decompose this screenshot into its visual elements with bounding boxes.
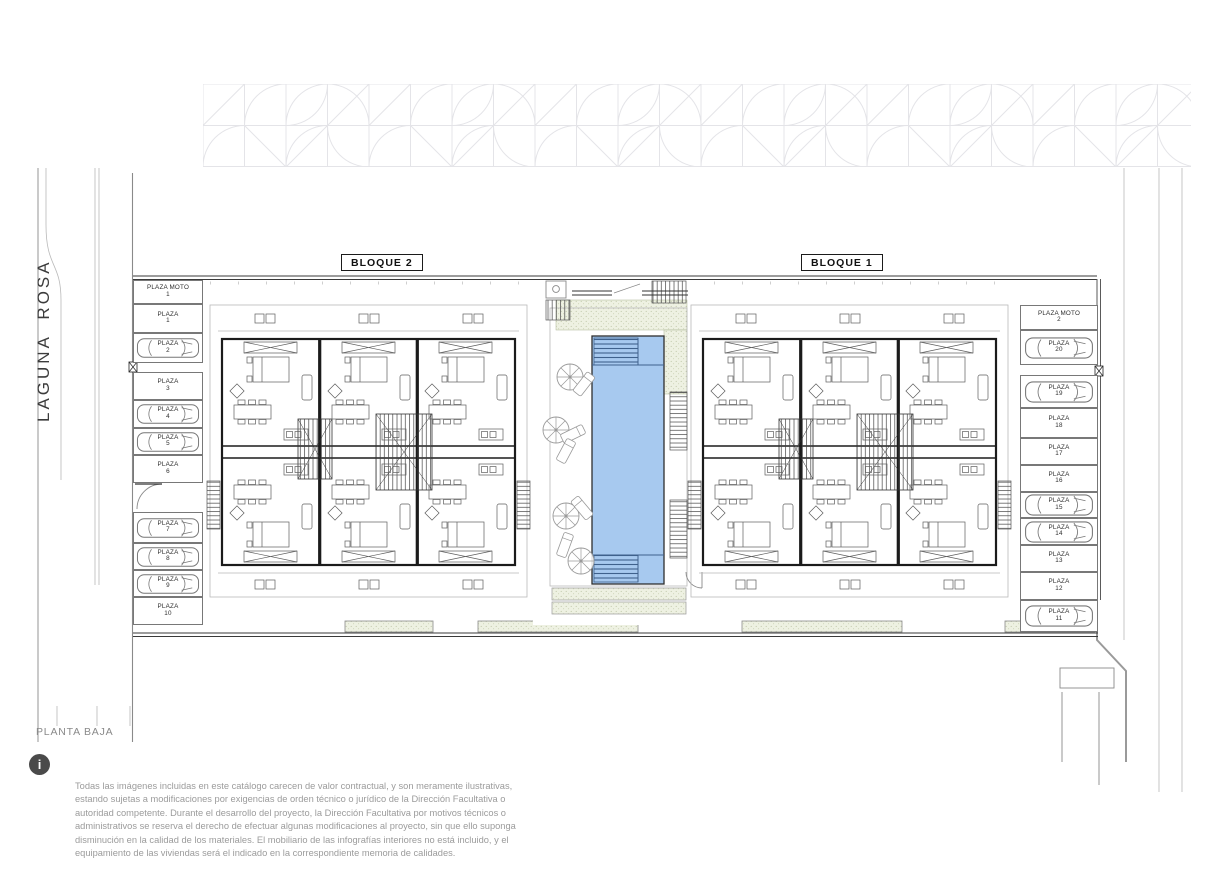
parking-stall-13: PLAZA13 [1020, 545, 1098, 572]
parking-stall-moto-2: PLAZA MOTO2 [1020, 305, 1098, 330]
parking-stall-9: PLAZA9 [133, 570, 203, 597]
pool-courtyard [533, 281, 702, 625]
parking-stall-20: PLAZA20 [1020, 330, 1098, 365]
info-icon: i [29, 754, 50, 775]
parking-stall-12: PLAZA12 [1020, 572, 1098, 600]
block1-label: BLOQUE 1 [801, 254, 883, 271]
parking-stall-11: PLAZA11 [1020, 600, 1098, 632]
block2-label: BLOQUE 2 [341, 254, 423, 271]
parking-stall-5: PLAZA5 [133, 428, 203, 455]
parking-stall-6: PLAZA6 [133, 455, 203, 483]
parking-stall-14: PLAZA14 [1020, 518, 1098, 545]
parking-stall-16: PLAZA16 [1020, 465, 1098, 492]
parking-stall-19: PLAZA19 [1020, 375, 1098, 408]
planters [345, 621, 1095, 632]
parking-stall-10: PLAZA10 [133, 597, 203, 625]
parking-stall-1: PLAZA1 [133, 304, 203, 333]
parking-stall-3: PLAZA3 [133, 372, 203, 400]
parking-stall-15: PLAZA15 [1020, 492, 1098, 518]
parking-stall-4: PLAZA4 [133, 400, 203, 428]
parking-stall-18: PLAZA18 [1020, 408, 1098, 438]
parking-stall-17: PLAZA17 [1020, 438, 1098, 465]
street-name-label: LAGUNA ROSA [34, 276, 54, 422]
bloque-2-plan [207, 305, 530, 597]
parking-stall-2: PLAZA2 [133, 333, 203, 363]
disclaimer-text: Todas las imágenes incluidas en este cat… [75, 780, 527, 860]
street-road-left [38, 168, 130, 742]
floor-plan-canvas: PLAZA MOTO1 PLAZA1 PLAZA2 PLAZA3 PLAZA4 … [0, 0, 1220, 870]
bloque-1-plan [688, 305, 1011, 597]
swimming-pool [592, 336, 664, 584]
parking-stall-7: PLAZA7 [133, 512, 203, 543]
parking-stall-8: PLAZA8 [133, 543, 203, 570]
parking-stall-moto-1: PLAZA MOTO1 [133, 280, 203, 304]
plan-title: PLANTA BAJA [36, 726, 113, 738]
